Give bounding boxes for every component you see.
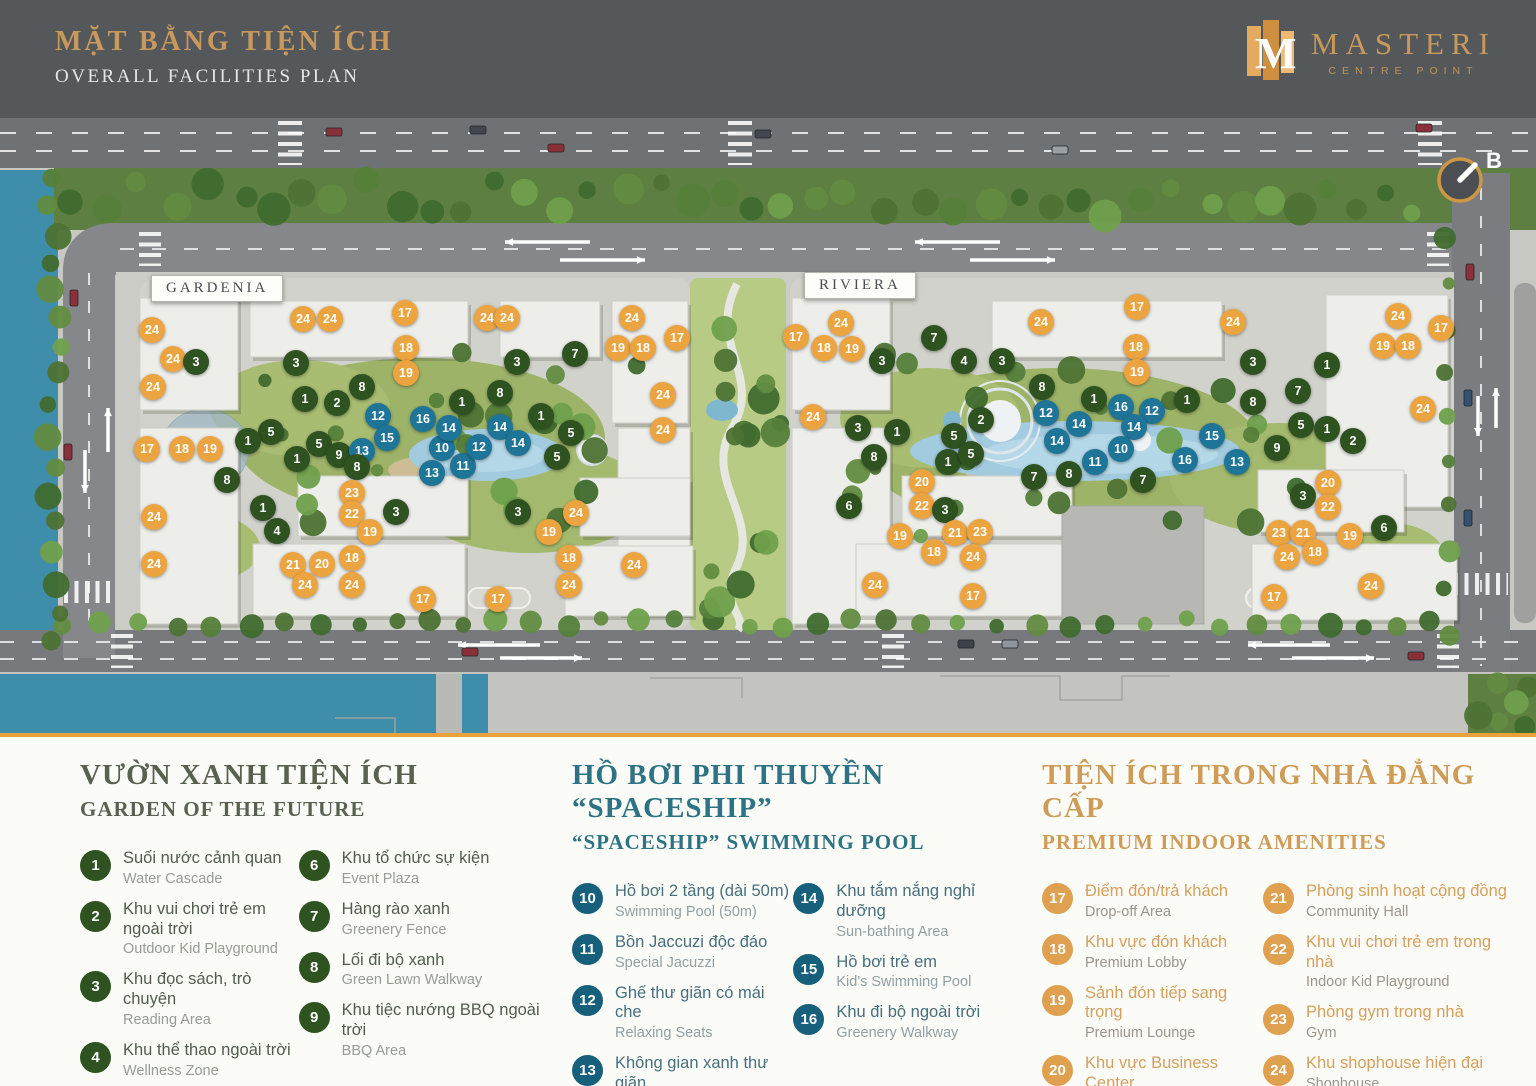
legend-badge-3: 3 [80,971,111,1002]
legend-badge-13: 13 [572,1055,603,1086]
legend-badge-17: 17 [1042,883,1073,914]
legend-item-1: 1Suối nước cảnh quanWater Cascade [80,849,299,887]
legend-item-24: 24Khu shophouse hiện đạiShophouse [1263,1054,1522,1086]
legend-items: 17Điểm đón/trả kháchDrop-off Area18Khu v… [1042,882,1522,1086]
legend-label-en: Premium Lobby [1085,955,1227,971]
plan-marker-24: 24 [800,404,826,430]
plan-marker-19: 19 [1370,333,1396,359]
legend-item-texts: Khu vui chơi trẻ em trong nhàIndoor Kid … [1306,933,1522,991]
plan-marker-18: 18 [393,335,419,361]
legend-label-en: Greenery Fence [342,922,450,938]
plan-marker-17: 17 [1261,584,1287,610]
plan-marker-1: 1 [528,403,554,429]
legend-badge-18: 18 [1042,934,1073,965]
svg-text:M: M [1255,29,1297,78]
plan-marker-24: 24 [141,504,167,530]
plan-marker-24: 24 [650,417,676,443]
plan-marker-8: 8 [1240,389,1266,415]
plan-marker-1: 1 [449,389,475,415]
legend-label-vi: Lối đi bộ xanh [342,951,483,971]
legend-label-vi: Khu vui chơi trẻ em trong nhà [1306,933,1522,973]
legend-label-en: Shophouse [1306,1076,1483,1086]
plan-marker-14: 14 [1066,411,1092,437]
plan-marker-20: 20 [1315,470,1341,496]
legend-column: 6Khu tổ chức sự kiệnEvent Plaza7Hàng rào… [299,849,550,1086]
plan-marker-12: 12 [466,434,492,460]
plan-marker-8: 8 [487,380,513,406]
legend-column: 10Hồ bơi 2 tầng (dài 50m)Swimming Pool (… [572,882,793,1086]
plan-marker-19: 19 [393,360,419,386]
legend-item-10: 10Hồ bơi 2 tầng (dài 50m)Swimming Pool (… [572,882,793,920]
plan-marker-3: 3 [505,499,531,525]
plan-marker-17: 17 [392,300,418,326]
plan-marker-3: 3 [989,348,1015,374]
plan-marker-22: 22 [909,493,935,519]
legend-label-vi: Suối nước cảnh quan [123,849,282,869]
plan-marker-17: 17 [410,586,436,612]
legend-label-vi: Khu vui chơi trẻ em ngoài trời [123,900,299,940]
legend-label-en: Kid's Swimming Pool [836,974,971,990]
plan-marker-1: 1 [284,446,310,472]
legend-item-texts: Khu đi bộ ngoài trờiGreenery Walkway [836,1003,980,1041]
legend-item-16: 16Khu đi bộ ngoài trờiGreenery Walkway [793,1003,1022,1041]
plan-marker-1: 1 [1314,352,1340,378]
legend-label-vi: Khu đi bộ ngoài trời [836,1003,980,1023]
legend-item-texts: Bồn Jaccuzi độc đáoSpecial Jacuzzi [615,933,767,971]
legend-item-texts: Hàng rào xanhGreenery Fence [342,900,450,938]
legend-badge-6: 6 [299,850,330,881]
plan-marker-15: 15 [1199,423,1225,449]
plan-marker-3: 3 [845,415,871,441]
legend-item-23: 23Phòng gym trong nhàGym [1263,1003,1522,1041]
legend: VƯỜN XANH TIỆN ÍCH GARDEN OF THE FUTURE … [0,733,1536,1086]
plan-marker-24: 24 [828,310,854,336]
legend-label-en: Special Jacuzzi [615,955,767,971]
plan-marker-10: 10 [1108,436,1134,462]
legend-section-pool: HỒ BƠI PHI THUYỀN “SPACESHIP” “SPACESHIP… [572,759,1022,1086]
plan-marker-19: 19 [536,519,562,545]
legend-badge-12: 12 [572,985,603,1016]
plan-marker-24: 24 [1274,544,1300,570]
title-block: MẶT BẰNG TIỆN ÍCH OVERALL FACILITIES PLA… [55,26,394,88]
plan-marker-8: 8 [1056,461,1082,487]
legend-item-11: 11Bồn Jaccuzi độc đáoSpecial Jacuzzi [572,933,793,971]
plan-marker-24: 24 [1385,303,1411,329]
plan-marker-17: 17 [960,583,986,609]
plan-marker-20: 20 [309,551,335,577]
legend-badge-16: 16 [793,1004,824,1035]
plan-marker-18: 18 [169,436,195,462]
plan-marker-17: 17 [783,324,809,350]
legend-title-vi: TIỆN ÍCH TRONG NHÀ ĐẲNG CẤP [1042,759,1522,825]
legend-label-en: Wellness Zone [123,1063,291,1079]
legend-title-en: PREMIUM INDOOR AMENITIES [1042,830,1522,855]
plan-marker-19: 19 [1124,359,1150,385]
plan-marker-19: 19 [605,335,631,361]
legend-label-en: Community Hall [1306,904,1507,920]
plan-marker-8: 8 [344,454,370,480]
legend-column: 21Phòng sinh hoạt cộng đồngCommunity Hal… [1263,882,1522,1086]
plan-marker-24: 24 [339,572,365,598]
legend-title-vi: HỒ BƠI PHI THUYỀN “SPACESHIP” [572,759,1022,825]
plan-marker-24: 24 [621,552,647,578]
legend-item-texts: Khu thể thao ngoài trờiWellness Zone [123,1041,291,1079]
legend-item-texts: Khu tiệc nướng BBQ ngoài trờiBBQ Area [342,1001,550,1059]
plan-marker-18: 18 [339,545,365,571]
plan-marker-17: 17 [485,586,511,612]
plan-marker-17: 17 [664,325,690,351]
legend-label-en: Reading Area [123,1012,299,1028]
legend-item-texts: Khu vực Business CenterBusiness Center [1085,1054,1263,1086]
plan-marker-18: 18 [556,545,582,571]
legend-item-texts: Ghế thư giãn có mái cheRelaxing Seats [615,984,793,1042]
plan-marker-1: 1 [1081,386,1107,412]
legend-badge-21: 21 [1263,883,1294,914]
plan-marker-5: 5 [544,444,570,470]
legend-badge-23: 23 [1263,1004,1294,1035]
brand-name: MASTERI [1311,26,1496,62]
legend-label-en: Event Plaza [342,871,490,887]
plan-marker-8: 8 [1029,374,1055,400]
legend-section-garden: VƯỜN XANH TIỆN ÍCH GARDEN OF THE FUTURE … [80,759,550,1086]
plan-marker-6: 6 [1371,515,1397,541]
legend-badge-11: 11 [572,934,603,965]
legend-item-texts: Không gian xanh thư giãnLawn Terrace [615,1054,793,1086]
legend-label-en: Greenery Walkway [836,1025,980,1041]
plan-marker-1: 1 [250,495,276,521]
plan-marker-3: 3 [1290,483,1316,509]
plan-marker-17: 17 [1124,294,1150,320]
plan-marker-7: 7 [1021,464,1047,490]
legend-title-en: “SPACESHIP” SWIMMING POOL [572,830,1022,855]
legend-label-vi: Hồ bơi 2 tầng (dài 50m) [615,882,789,902]
plan-marker-5: 5 [258,419,284,445]
plan-marker-1: 1 [1174,387,1200,413]
legend-badge-1: 1 [80,850,111,881]
legend-label-vi: Sảnh đón tiếp sang trọng [1085,984,1263,1024]
plan-marker-11: 11 [1082,449,1108,475]
legend-label-en: Relaxing Seats [615,1025,793,1041]
plan-marker-24: 24 [160,346,186,372]
legend-label-en: Gym [1306,1025,1464,1041]
plan-marker-24: 24 [619,305,645,331]
plan-marker-1: 1 [884,419,910,445]
site-plan-map: GARDENIA RIVIERA B 242424242417181933242… [0,118,1536,735]
plan-marker-24: 24 [1028,309,1054,335]
legend-badge-4: 4 [80,1042,111,1073]
legend-badge-7: 7 [299,901,330,932]
legend-badge-24: 24 [1263,1055,1294,1086]
plan-marker-4: 4 [264,518,290,544]
legend-item-21: 21Phòng sinh hoạt cộng đồngCommunity Hal… [1263,882,1522,920]
plan-marker-24: 24 [139,317,165,343]
legend-item-texts: Khu shophouse hiện đạiShophouse [1306,1054,1483,1086]
plan-marker-14: 14 [505,430,531,456]
brand-logo: M MASTERI CENTRE POINT [1243,18,1496,84]
legend-column: 14Khu tắm nắng nghỉ dưỡngSun-bathing Are… [793,882,1022,1086]
plan-marker-2: 2 [324,390,350,416]
plan-marker-24: 24 [1410,396,1436,422]
page-header: MẶT BẰNG TIỆN ÍCH OVERALL FACILITIES PLA… [0,0,1536,118]
legend-label-en: Swimming Pool (50m) [615,904,789,920]
legend-label-vi: Điểm đón/trả khách [1085,882,1228,902]
plan-marker-24: 24 [141,551,167,577]
legend-item-texts: Hồ bơi 2 tầng (dài 50m)Swimming Pool (50… [615,882,789,920]
plan-marker-2: 2 [968,407,994,433]
plan-marker-24: 24 [960,544,986,570]
plan-marker-23: 23 [967,519,993,545]
legend-label-en: Sun-bathing Area [836,924,1022,940]
legend-item-22: 22Khu vui chơi trẻ em trong nhàIndoor Ki… [1263,933,1522,991]
plan-marker-3: 3 [1240,349,1266,375]
legend-item-19: 19Sảnh đón tiếp sang trọngPremium Lounge [1042,984,1263,1042]
legend-title-en: GARDEN OF THE FUTURE [80,797,550,822]
plan-marker-24: 24 [494,305,520,331]
legend-label-vi: Khu tắm nắng nghỉ dưỡng [836,882,1022,922]
plan-marker-21: 21 [942,520,968,546]
legend-item-4: 4Khu thể thao ngoài trờiWellness Zone [80,1041,299,1079]
legend-items: 10Hồ bơi 2 tầng (dài 50m)Swimming Pool (… [572,882,1022,1086]
plan-marker-5: 5 [1288,412,1314,438]
plan-marker-12: 12 [1033,400,1059,426]
plan-marker-24: 24 [1358,573,1384,599]
legend-item-6: 6Khu tổ chức sự kiệnEvent Plaza [299,849,550,887]
legend-label-vi: Khu vực Business Center [1085,1054,1263,1086]
plan-marker-8: 8 [349,374,375,400]
facilities-plan-page: MẶT BẰNG TIỆN ÍCH OVERALL FACILITIES PLA… [0,0,1536,1086]
legend-label-vi: Khu vực đón khách [1085,933,1227,953]
legend-item-texts: Khu tổ chức sự kiệnEvent Plaza [342,849,490,887]
plan-marker-7: 7 [562,341,588,367]
plan-marker-24: 24 [140,374,166,400]
masteri-building-icon: M [1243,18,1301,84]
plan-marker-9: 9 [1264,435,1290,461]
page-subtitle: OVERALL FACILITIES PLAN [55,66,394,88]
legend-item-13: 13Không gian xanh thư giãnLawn Terrace [572,1054,793,1086]
legend-label-vi: Hàng rào xanh [342,900,450,920]
plan-marker-7: 7 [1130,467,1156,493]
legend-item-texts: Khu đọc sách, trò chuyệnReading Area [123,970,299,1028]
plan-marker-8: 8 [861,444,887,470]
plan-marker-5: 5 [558,420,584,446]
plan-marker-16: 16 [410,406,436,432]
legend-badge-8: 8 [299,952,330,983]
legend-label-vi: Khu thể thao ngoài trời [123,1041,291,1061]
legend-label-vi: Phòng gym trong nhà [1306,1003,1464,1023]
legend-items: 1Suối nước cảnh quanWater Cascade2Khu vu… [80,849,550,1086]
plan-marker-5: 5 [958,441,984,467]
legend-badge-9: 9 [299,1002,330,1033]
legend-title-vi: VƯỜN XANH TIỆN ÍCH [80,759,550,792]
plan-marker-14: 14 [436,415,462,441]
legend-badge-2: 2 [80,901,111,932]
legend-label-en: Water Cascade [123,871,282,887]
plan-marker-13: 13 [1224,449,1250,475]
legend-badge-15: 15 [793,954,824,985]
plan-marker-18: 18 [921,539,947,565]
plan-marker-24: 24 [292,572,318,598]
plan-marker-23: 23 [1266,520,1292,546]
legend-label-vi: Khu tiệc nướng BBQ ngoài trời [342,1001,550,1041]
legend-label-en: Premium Lounge [1085,1025,1263,1041]
legend-label-en: Indoor Kid Playground [1306,974,1522,990]
plan-marker-17: 17 [134,436,160,462]
plan-marker-8: 8 [214,467,240,493]
legend-item-texts: Khu tắm nắng nghỉ dưỡngSun-bathing Area [836,882,1022,940]
legend-item-18: 18Khu vực đón kháchPremium Lobby [1042,933,1263,971]
legend-badge-22: 22 [1263,934,1294,965]
legend-label-vi: Hồ bơi trẻ em [836,953,971,973]
plan-marker-3: 3 [504,349,530,375]
plan-marker-22: 22 [1315,494,1341,520]
plan-marker-7: 7 [1285,378,1311,404]
plan-markers-layer: 2424242424171819332424172424241819812559… [0,118,1536,735]
plan-marker-1: 1 [235,428,261,454]
legend-label-en: Outdoor Kid Playground [123,941,299,957]
legend-label-vi: Phòng sinh hoạt cộng đồng [1306,882,1507,902]
legend-item-texts: Sảnh đón tiếp sang trọngPremium Lounge [1085,984,1263,1042]
plan-marker-3: 3 [869,348,895,374]
plan-marker-4: 4 [951,348,977,374]
legend-item-14: 14Khu tắm nắng nghỉ dưỡngSun-bathing Are… [793,882,1022,940]
plan-marker-17: 17 [1428,315,1454,341]
legend-item-3: 3Khu đọc sách, trò chuyệnReading Area [80,970,299,1028]
plan-marker-24: 24 [556,572,582,598]
plan-marker-19: 19 [357,519,383,545]
plan-marker-3: 3 [283,350,309,376]
plan-marker-7: 7 [921,325,947,351]
legend-label-vi: Khu shophouse hiện đại [1306,1054,1483,1074]
legend-item-20: 20Khu vực Business CenterBusiness Center [1042,1054,1263,1086]
legend-badge-19: 19 [1042,985,1073,1016]
plan-marker-6: 6 [836,493,862,519]
legend-label-en: Drop-off Area [1085,904,1228,920]
plan-marker-20: 20 [909,469,935,495]
legend-item-texts: Suối nước cảnh quanWater Cascade [123,849,282,887]
legend-item-texts: Khu vực đón kháchPremium Lobby [1085,933,1227,971]
plan-marker-18: 18 [1395,333,1421,359]
legend-label-en: Green Lawn Walkway [342,972,483,988]
plan-marker-2: 2 [1340,428,1366,454]
legend-item-texts: Khu vui chơi trẻ em ngoài trờiOutdoor Ki… [123,900,299,958]
legend-label-vi: Không gian xanh thư giãn [615,1054,793,1086]
legend-item-texts: Hồ bơi trẻ emKid's Swimming Pool [836,953,971,991]
plan-marker-15: 15 [374,425,400,451]
plan-marker-1: 1 [1314,416,1340,442]
plan-marker-3: 3 [383,499,409,525]
legend-item-texts: Điểm đón/trả kháchDrop-off Area [1085,882,1228,920]
legend-item-texts: Lối đi bộ xanhGreen Lawn Walkway [342,951,483,989]
legend-label-en: BBQ Area [342,1043,550,1059]
legend-section-indoor: TIỆN ÍCH TRONG NHÀ ĐẲNG CẤP PREMIUM INDO… [1042,759,1522,1086]
brand-text: MASTERI CENTRE POINT [1311,26,1496,77]
legend-item-12: 12Ghế thư giãn có mái cheRelaxing Seats [572,984,793,1042]
legend-item-9: 9Khu tiệc nướng BBQ ngoài trờiBBQ Area [299,1001,550,1059]
legend-badge-10: 10 [572,883,603,914]
legend-item-texts: Phòng sinh hoạt cộng đồngCommunity Hall [1306,882,1507,920]
plan-marker-18: 18 [1302,539,1328,565]
plan-marker-24: 24 [650,382,676,408]
plan-marker-19: 19 [887,523,913,549]
plan-marker-14: 14 [1044,428,1070,454]
legend-badge-20: 20 [1042,1055,1073,1086]
legend-item-8: 8Lối đi bộ xanhGreen Lawn Walkway [299,951,550,989]
plan-marker-18: 18 [630,335,656,361]
legend-item-7: 7Hàng rào xanhGreenery Fence [299,900,550,938]
plan-marker-19: 19 [839,336,865,362]
plan-marker-3: 3 [183,349,209,375]
legend-label-vi: Khu đọc sách, trò chuyện [123,970,299,1010]
legend-item-texts: Phòng gym trong nhàGym [1306,1003,1464,1041]
legend-item-17: 17Điểm đón/trả kháchDrop-off Area [1042,882,1263,920]
plan-marker-18: 18 [811,335,837,361]
plan-marker-18: 18 [1123,334,1149,360]
plan-marker-19: 19 [1337,523,1363,549]
legend-item-2: 2Khu vui chơi trẻ em ngoài trờiOutdoor K… [80,900,299,958]
plan-marker-24: 24 [563,500,589,526]
legend-column: 17Điểm đón/trả kháchDrop-off Area18Khu v… [1042,882,1263,1086]
legend-badge-14: 14 [793,883,824,914]
plan-marker-24: 24 [862,572,888,598]
plan-marker-1: 1 [292,386,318,412]
legend-label-vi: Bồn Jaccuzi độc đáo [615,933,767,953]
legend-item-15: 15Hồ bơi trẻ emKid's Swimming Pool [793,953,1022,991]
plan-marker-13: 13 [419,460,445,486]
plan-marker-24: 24 [1220,309,1246,335]
plan-marker-16: 16 [1172,447,1198,473]
legend-label-vi: Khu tổ chức sự kiện [342,849,490,869]
brand-subtitle: CENTRE POINT [1311,65,1496,77]
plan-marker-19: 19 [197,436,223,462]
plan-marker-24: 24 [317,306,343,332]
legend-label-vi: Ghế thư giãn có mái che [615,984,793,1024]
legend-column: 1Suối nước cảnh quanWater Cascade2Khu vu… [80,849,299,1086]
page-title: MẶT BẰNG TIỆN ÍCH [55,26,394,58]
plan-marker-24: 24 [290,306,316,332]
